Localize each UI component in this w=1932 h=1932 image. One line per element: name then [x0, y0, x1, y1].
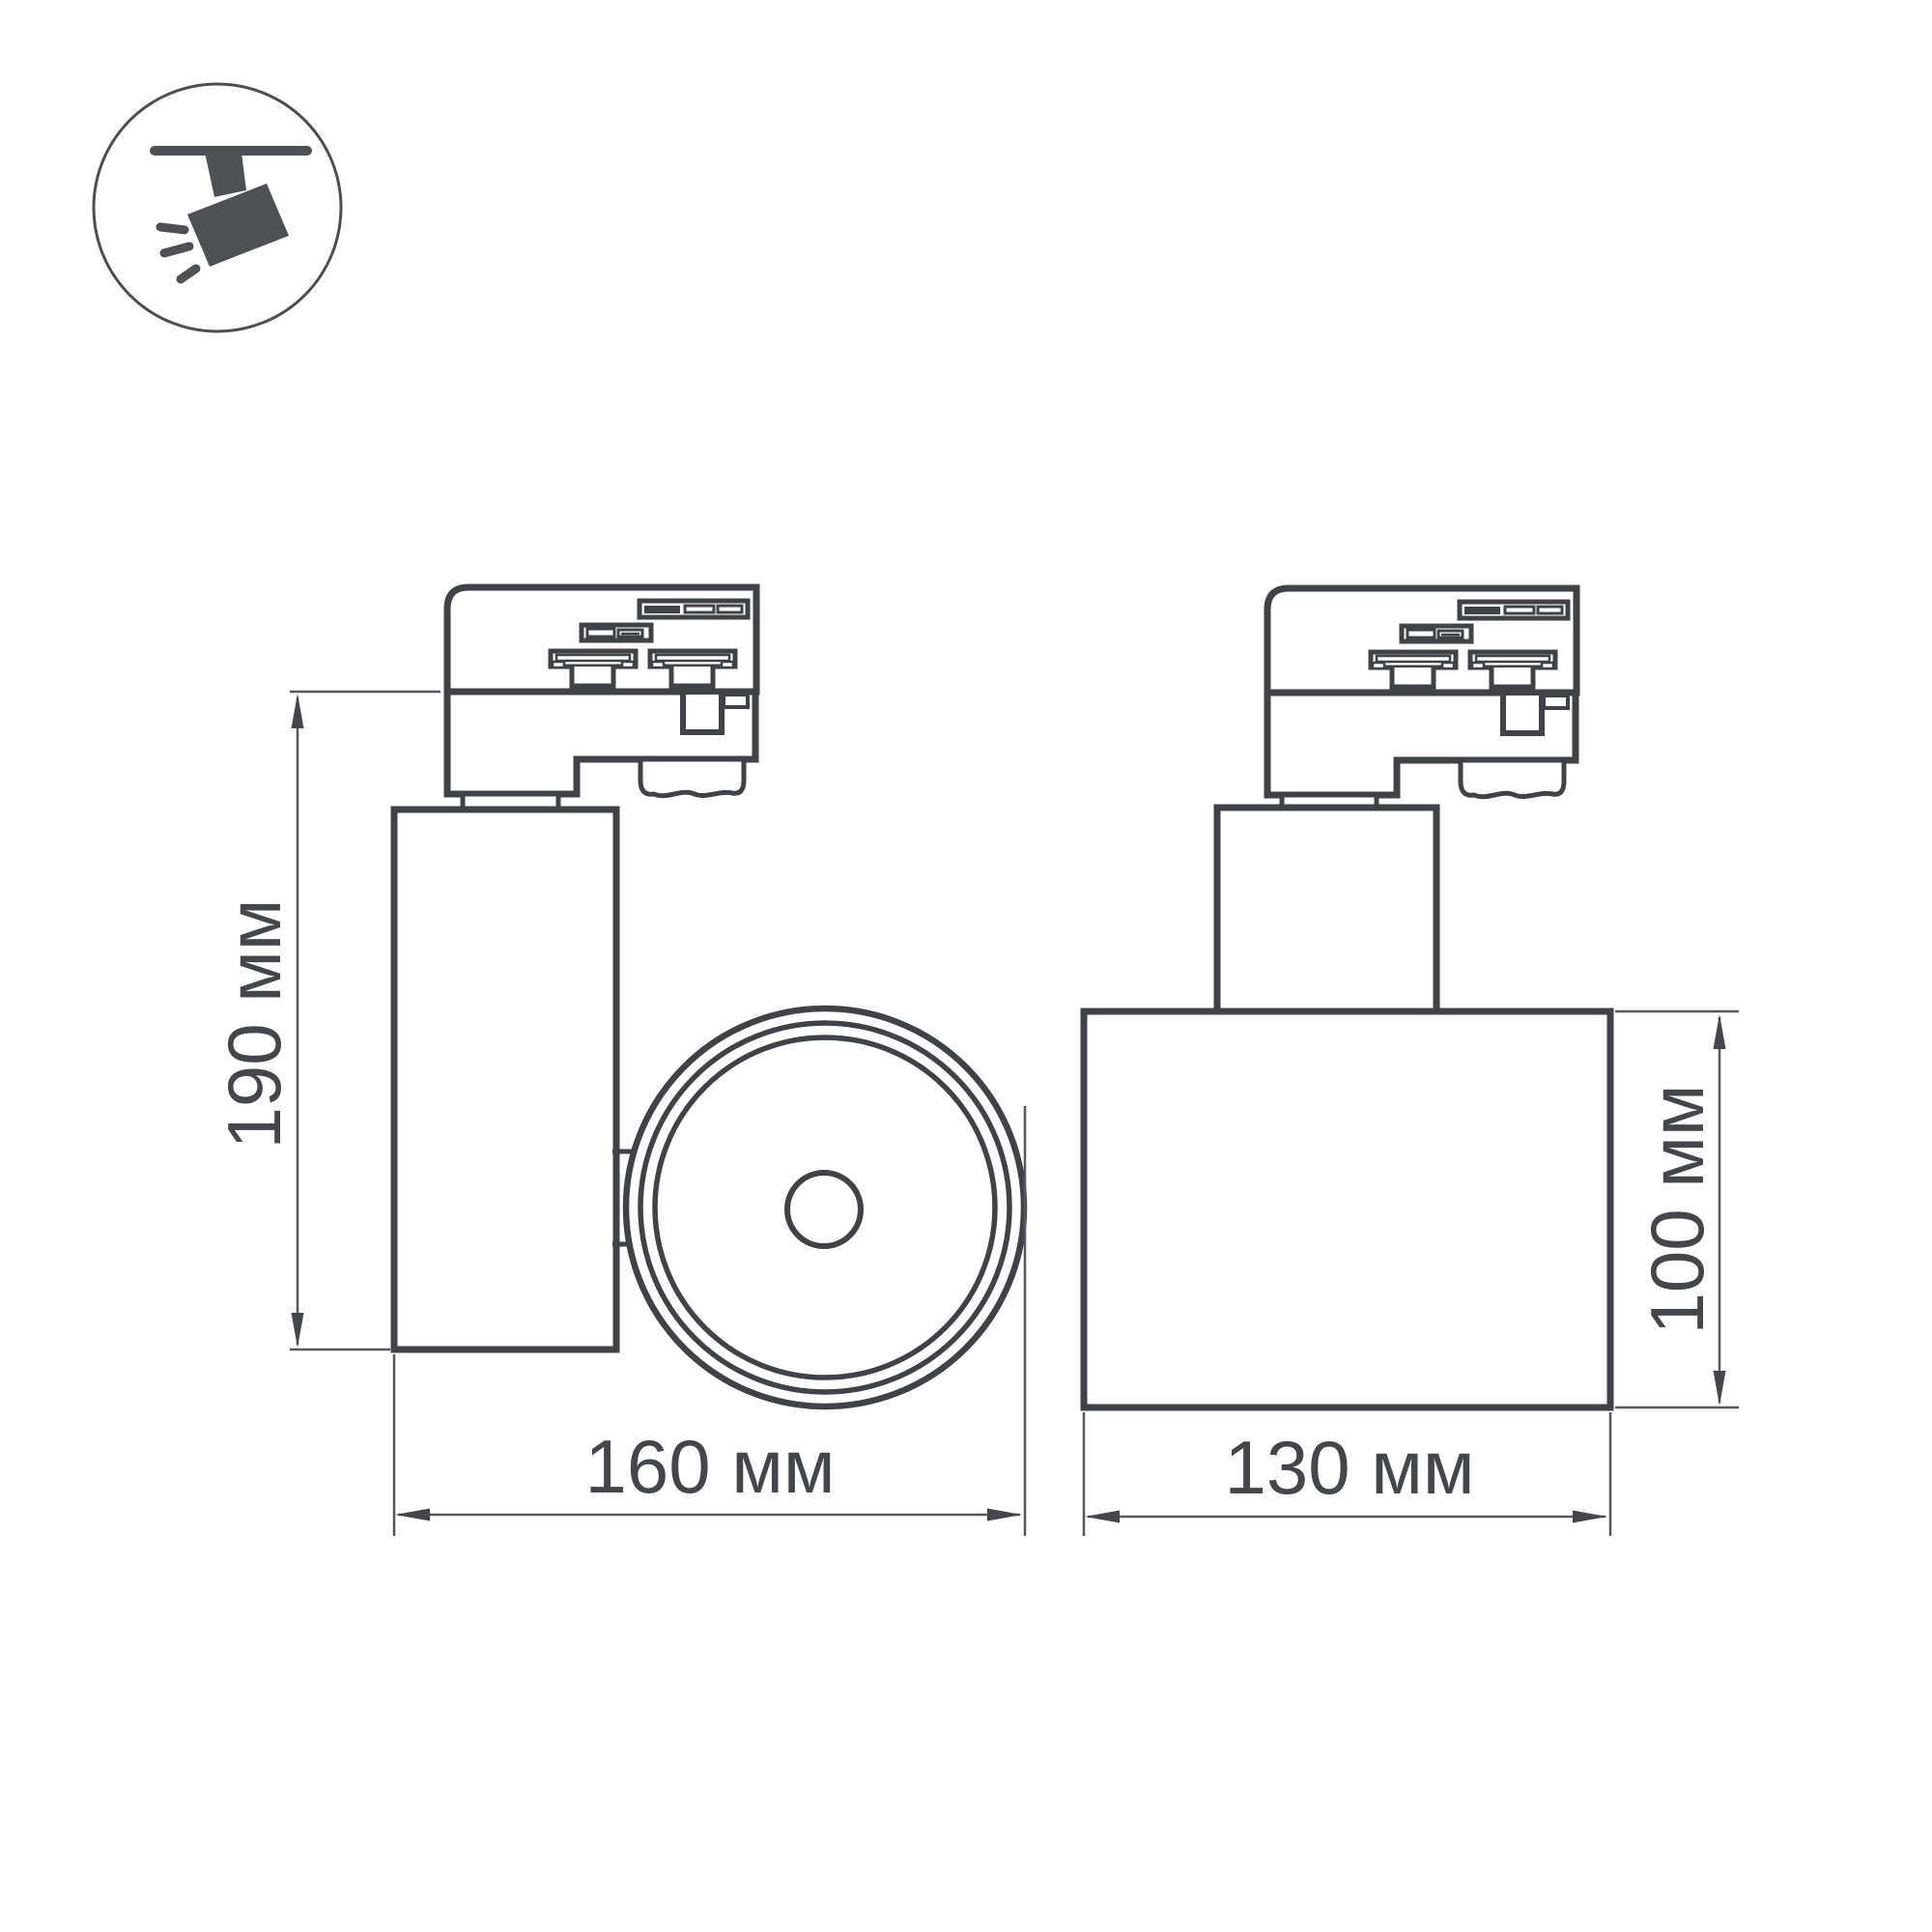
stem-block: [1217, 808, 1436, 1011]
dimension-label-height: 190 мм: [212, 898, 297, 1149]
arrowhead-up: [292, 694, 304, 728]
arrowhead-down: [292, 1313, 304, 1348]
arrowhead-right: [1573, 1511, 1607, 1523]
lens-front: [626, 1009, 1024, 1406]
diagram-page: 190 мм 160 мм 100 мм 130 мм: [0, 0, 1932, 1932]
arrowhead-up: [1714, 1014, 1726, 1049]
arrowhead-left: [1085, 1511, 1120, 1523]
track-adapter: [1267, 588, 1577, 797]
dimension-label-width: 160 мм: [584, 1424, 835, 1509]
icon-light-rays: [160, 227, 196, 279]
icon-stem: [205, 153, 246, 197]
lens-center-dot: [787, 1173, 861, 1246]
lamp-body: [1084, 1011, 1610, 1407]
arrowhead-left: [395, 1509, 430, 1521]
front-view: [1084, 588, 1610, 1407]
arrowhead-down: [1714, 1371, 1726, 1406]
track-spotlight-icon: [94, 84, 341, 331]
dimension-label-body-width: 130 мм: [1224, 1425, 1474, 1510]
arrowhead-right: [987, 1509, 1022, 1521]
side-view: [394, 587, 1024, 1406]
dimension-label-body-height: 100 мм: [1634, 1084, 1719, 1334]
lamp-body: [394, 810, 616, 1350]
icon-spot-head: [187, 184, 289, 267]
technical-drawing: 190 мм 160 мм 100 мм 130 мм: [0, 0, 1932, 1932]
track-adapter: [447, 587, 756, 796]
